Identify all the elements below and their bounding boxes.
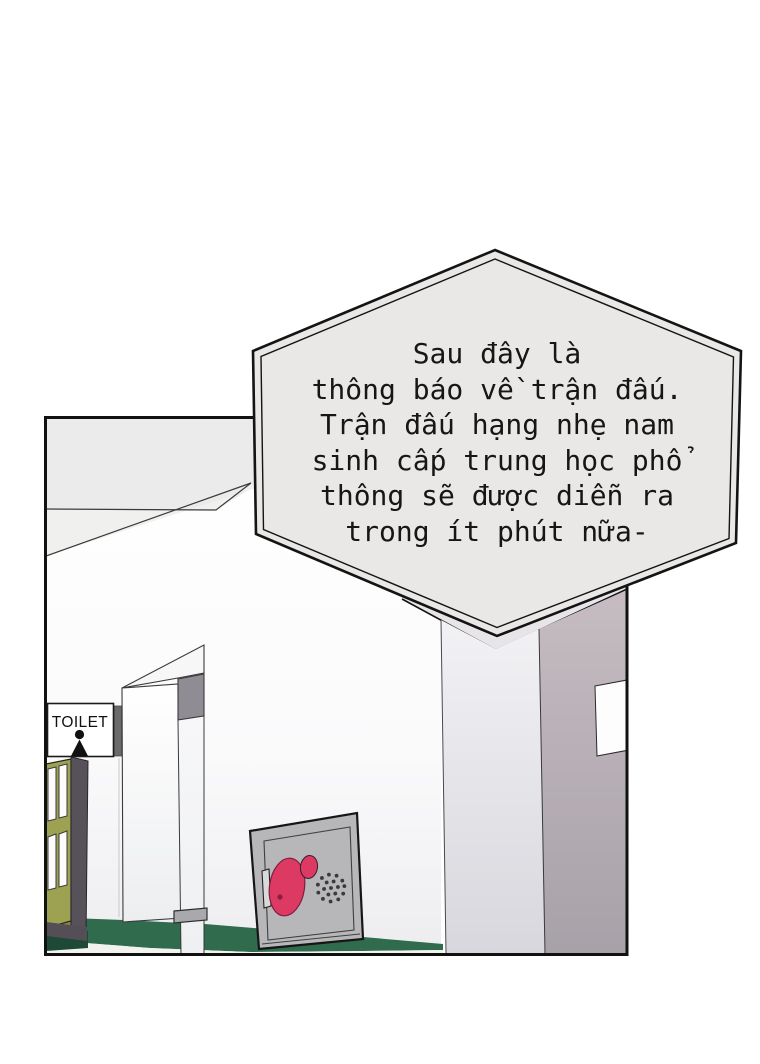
- announcement-bubble-text: Sau đây là thông báo về trận đấu. Trận đ…: [253, 336, 741, 549]
- cabinet-disc-dot: [277, 894, 282, 899]
- wall-partition: [122, 645, 207, 954]
- bubble-text-line: trong ít phút nữa-: [253, 514, 741, 550]
- bubble-text-line: Sau đây là: [253, 336, 741, 372]
- hallway-corner-wall: [441, 620, 545, 954]
- bubble-text-line: thông báo về trận đấu.: [253, 372, 741, 408]
- toilet-sign: TOILET: [48, 704, 122, 757]
- door-frame: [71, 757, 88, 938]
- bubble-text-line: Trận đấu hạng nhẹ nam: [253, 407, 741, 443]
- pillar-window: [595, 680, 629, 756]
- toilet-sign-tab: [114, 706, 122, 756]
- mauve-pillar: [539, 590, 627, 954]
- toilet-sign-label: TOILET: [52, 714, 109, 731]
- comic-page: TOILET: [0, 0, 760, 1064]
- bubble-text-line: thông sẽ được diễn ra: [253, 478, 741, 514]
- utility-cabinet: [250, 813, 363, 949]
- partition-cap: [178, 674, 204, 720]
- bubble-text-line: sinh cấp trung học phổ: [253, 443, 741, 479]
- partition-bracket: [174, 908, 207, 923]
- partition-left-face: [122, 684, 182, 922]
